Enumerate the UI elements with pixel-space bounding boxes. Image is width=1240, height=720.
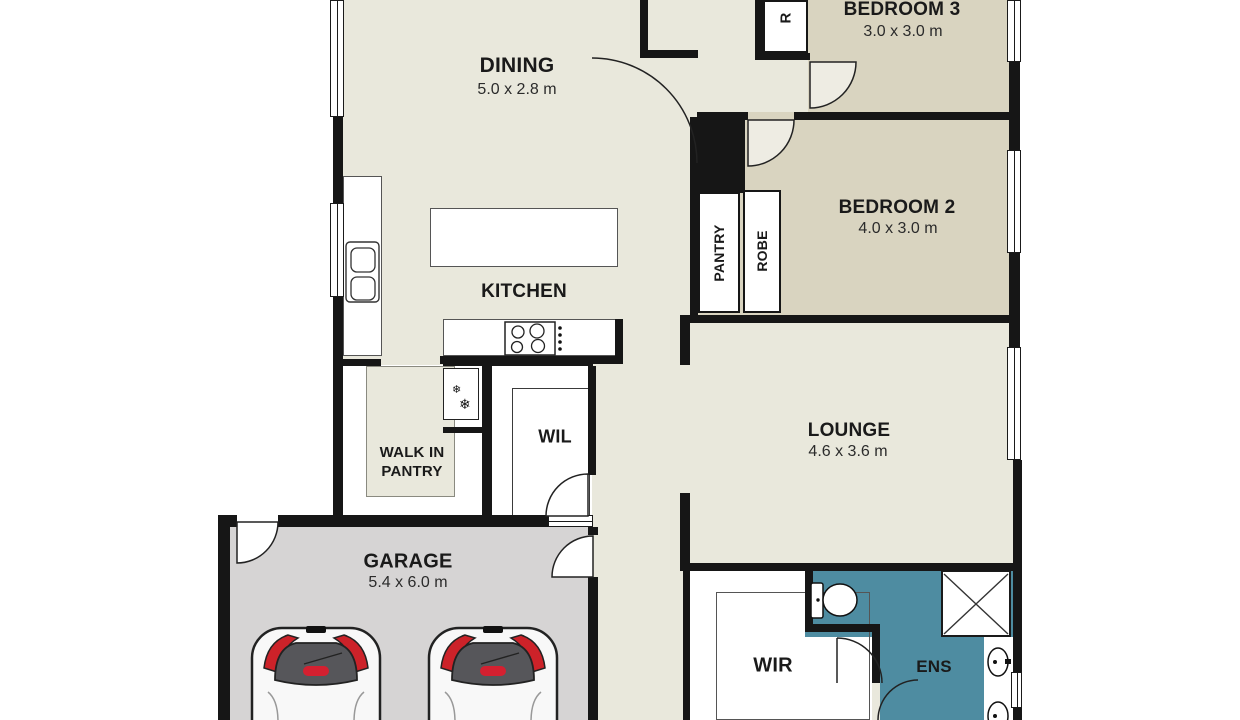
lounge-dims: 4.6 x 3.6 m xyxy=(808,443,887,461)
wall xyxy=(1013,708,1022,720)
window xyxy=(330,203,344,297)
window-mullion xyxy=(337,204,338,296)
robe3-label: R xyxy=(778,12,795,23)
wall xyxy=(588,577,598,720)
bedroom3-label: BEDROOM 3 xyxy=(844,0,961,21)
kitchen-island xyxy=(430,208,618,267)
shower xyxy=(941,570,1011,637)
pantry-label: PANTRY xyxy=(711,224,727,281)
window xyxy=(548,515,593,527)
robe3-cupboard xyxy=(763,0,808,53)
wall xyxy=(615,319,623,364)
wall xyxy=(755,0,763,60)
kitchen-counter-left xyxy=(343,176,382,356)
dining-label: DINING xyxy=(480,54,555,78)
window-mullion xyxy=(1014,1,1015,61)
window xyxy=(1007,0,1021,62)
wall xyxy=(805,570,813,630)
wir-wardrobe-outline xyxy=(716,592,870,720)
kitchen-counter-bottom xyxy=(443,319,623,356)
wall xyxy=(872,632,880,683)
wall xyxy=(805,624,880,632)
window xyxy=(1011,672,1022,708)
walk-in-pantry-label: WALK IN PANTRY xyxy=(364,443,460,481)
wall xyxy=(697,117,745,193)
wir-label: WIR xyxy=(753,655,792,678)
wall xyxy=(794,112,1013,120)
wall xyxy=(333,117,343,203)
wil-shelf-outline xyxy=(512,388,590,518)
wall xyxy=(278,515,550,527)
wall xyxy=(1009,62,1020,150)
window-mullion xyxy=(337,1,338,116)
bedroom2-dims: 4.0 x 3.0 m xyxy=(858,220,937,238)
wall xyxy=(680,323,690,365)
floor-plan: ❄ ❄ xyxy=(0,0,1240,720)
fridge xyxy=(443,368,479,420)
wall xyxy=(680,493,690,571)
wil-label: WIL xyxy=(538,427,572,448)
robe-label: ROBE xyxy=(754,230,770,271)
window-mullion xyxy=(1014,348,1015,459)
wall xyxy=(218,515,230,720)
vanity-counter xyxy=(984,637,1013,720)
window xyxy=(1007,347,1021,460)
wall xyxy=(588,366,596,475)
wall xyxy=(333,297,343,527)
wall xyxy=(443,359,593,366)
window-mullion xyxy=(1014,151,1015,252)
window-mullion xyxy=(1017,673,1018,707)
kitchen-label: KITCHEN xyxy=(481,281,567,303)
garage-label: GARAGE xyxy=(364,551,453,574)
ens-label: ENS xyxy=(916,657,952,677)
ensuite-floor-lower xyxy=(880,637,985,720)
wall xyxy=(482,366,492,518)
wall xyxy=(443,427,482,433)
wall xyxy=(683,563,690,720)
wall xyxy=(588,527,598,535)
wall xyxy=(680,315,1013,323)
window-mullion xyxy=(549,521,592,522)
wall xyxy=(640,50,698,58)
bedroom2-label: BEDROOM 2 xyxy=(839,197,956,219)
window xyxy=(330,0,344,117)
lounge-label: LOUNGE xyxy=(808,420,890,442)
wall xyxy=(1009,253,1020,347)
bedroom3-dims: 3.0 x 3.0 m xyxy=(863,23,942,41)
wall xyxy=(690,563,1013,571)
wall xyxy=(1013,460,1022,672)
wall xyxy=(690,117,698,323)
wall xyxy=(343,359,381,366)
wall xyxy=(755,53,810,60)
dining-dims: 5.0 x 2.8 m xyxy=(477,81,556,99)
window xyxy=(1007,150,1021,253)
garage-dims: 5.4 x 6.0 m xyxy=(368,574,447,592)
